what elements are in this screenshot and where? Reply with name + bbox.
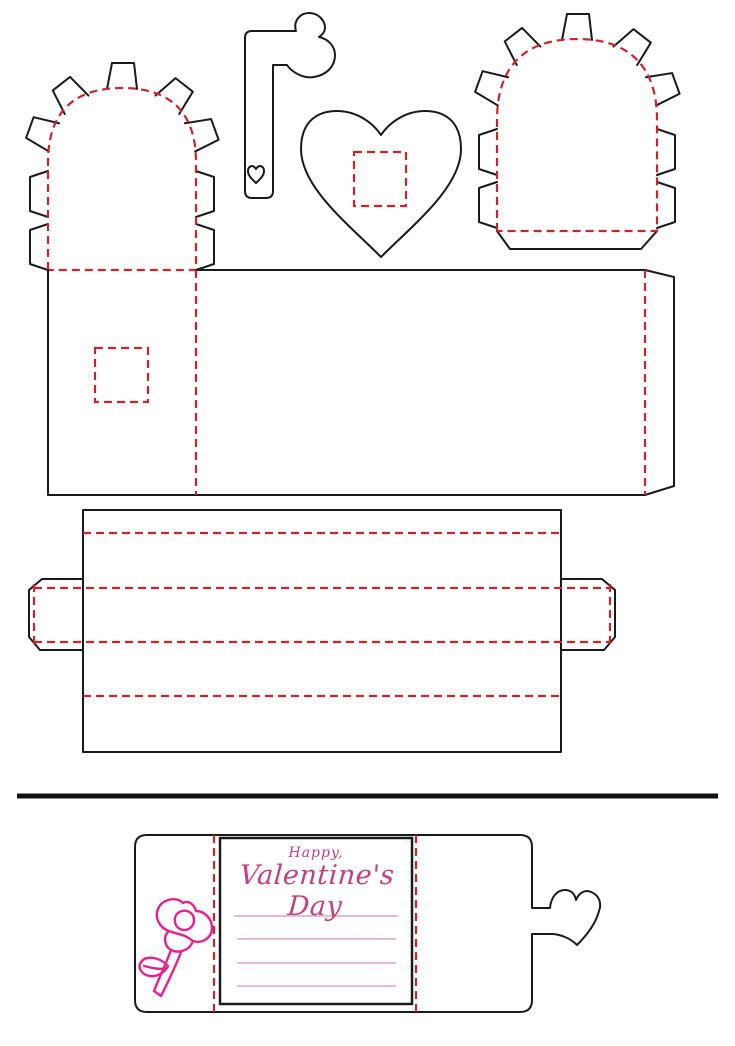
- card-greeting-top: Happy,: [220, 845, 412, 861]
- arch-fold-outline: [48, 88, 196, 270]
- scalloped-arch-flap-right: [473, 14, 680, 249]
- right-glue-tab: [561, 579, 615, 650]
- heart-key: [245, 13, 335, 198]
- bottom-glue-tab: [497, 231, 657, 249]
- glue-tab-icons: [24, 63, 219, 270]
- card-greeting-main: Valentine's Day: [216, 860, 416, 922]
- box-sleeve-panel: [29, 510, 615, 752]
- panel-cut-outline: [48, 270, 674, 495]
- heart-window-fold: [354, 152, 406, 206]
- heart-outline: [301, 111, 461, 257]
- heart-with-window: [301, 111, 461, 257]
- glue-tab-icons: [473, 14, 680, 228]
- arch-fold-outline: [497, 39, 657, 231]
- box-body-panel: [48, 270, 674, 495]
- key-outline: [245, 13, 335, 198]
- sleeve-cut-outline: [83, 510, 561, 752]
- window-fold: [95, 348, 148, 402]
- small-heart-icon: [248, 166, 264, 183]
- scalloped-arch-flap-left: [24, 63, 219, 270]
- template-sheet: Happy, Valentine's Day: [0, 0, 735, 1046]
- left-glue-tab: [29, 579, 83, 650]
